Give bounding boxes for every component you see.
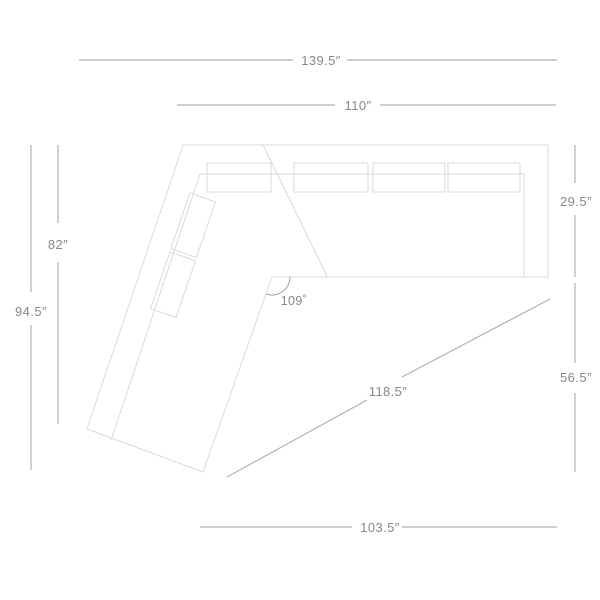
- dimension-label: 82″: [48, 237, 68, 252]
- dimension-diagonal: 118.5″: [227, 299, 550, 477]
- dimension-seat-depth: 29.5″: [560, 145, 592, 277]
- sofa-outer-outline: [87, 145, 548, 472]
- dimension-overall-width: 139.5″: [79, 53, 557, 68]
- dimension-label: 139.5″: [301, 53, 341, 68]
- dimension-right-lower: 56.5″: [560, 283, 592, 472]
- dimension-chaise-inner: 82″: [48, 145, 68, 424]
- dimension-line-segment: [227, 400, 367, 477]
- corner-wedge-seam-line: [263, 145, 327, 276]
- dimension-chaise-overall: 94.5″: [15, 145, 47, 470]
- dimension-label: 103.5″: [360, 520, 400, 535]
- angle-arc: [266, 277, 290, 295]
- back-cushion-1: [207, 163, 271, 192]
- back-cushion-3: [373, 163, 445, 192]
- dimension-line-segment: [402, 299, 550, 377]
- dimension-bottom-width: 103.5″: [200, 520, 557, 535]
- back-cushion-2: [294, 163, 368, 192]
- dimension-label: 29.5″: [560, 194, 592, 209]
- sofa-plan: [87, 145, 548, 472]
- diagram-canvas: 109˚ 139.5″ 110″ 29.5″ 56.5″: [0, 0, 600, 600]
- corner-angle-annotation: 109˚: [266, 277, 307, 308]
- angle-label: 109˚: [281, 294, 308, 308]
- dimension-label: 118.5″: [369, 384, 408, 399]
- chaise-arm-inner-line: [111, 174, 200, 440]
- sectional-sofa-dimension-diagram: 109˚ 139.5″ 110″ 29.5″ 56.5″: [0, 0, 600, 600]
- dimension-section-width: 110″: [177, 98, 556, 113]
- dimension-label: 56.5″: [560, 370, 592, 385]
- dimension-label: 94.5″: [15, 304, 47, 319]
- chaise-cushion-1: [171, 193, 216, 258]
- chaise-cushion-2: [150, 252, 195, 318]
- dimension-label: 110″: [345, 98, 372, 113]
- back-cushion-4: [448, 163, 520, 192]
